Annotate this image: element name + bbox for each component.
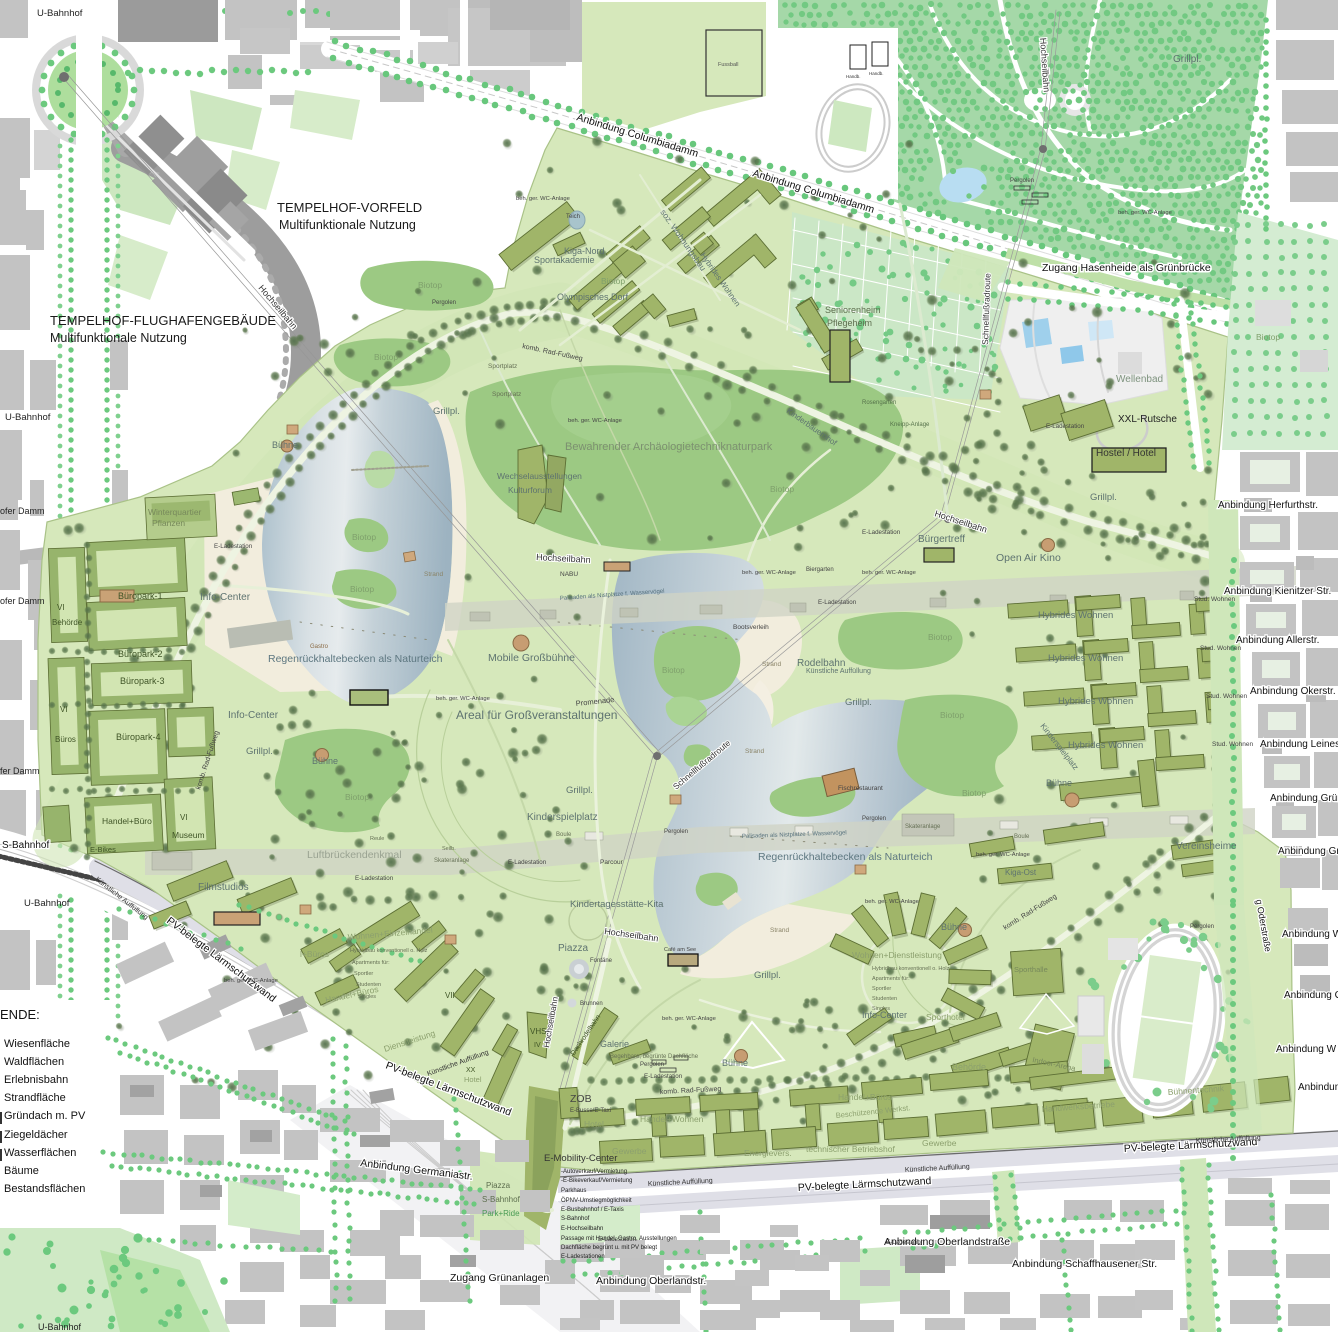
svg-text:Handel+Wohnen: Handel+Wohnen [640, 1114, 704, 1124]
svg-text:Kulturforum: Kulturforum [508, 485, 552, 495]
svg-text:Pergolen: Pergolen [1190, 924, 1214, 930]
svg-text:Biotop: Biotop [1256, 332, 1280, 342]
svg-text:Biotop: Biotop [928, 632, 952, 642]
svg-text:Anbindung Leinestr.: Anbindung Leinestr. [1260, 739, 1338, 750]
svg-text:Kneipp-Anlage: Kneipp-Anlage [890, 422, 930, 428]
svg-text:Künstliche Auffüllung: Künstliche Auffüllung [806, 668, 871, 675]
svg-text:Reule: Reule [370, 836, 384, 842]
svg-text:Sportplatz: Sportplatz [488, 363, 517, 370]
svg-text:Studenten: Studenten [356, 982, 381, 988]
svg-text:Büropark-1: Büropark-1 [118, 591, 163, 601]
svg-text:Handb.: Handb. [846, 74, 861, 79]
svg-text:Parcour: Parcour [600, 859, 624, 866]
svg-text:S-Bahnhof: S-Bahnhof [561, 1216, 590, 1222]
svg-text:E-Busbahnhof / E-Taxis: E-Busbahnhof / E-Taxis [561, 1207, 624, 1213]
svg-text:Kinderspielplatz: Kinderspielplatz [527, 812, 598, 823]
svg-text:Bürgertreff: Bürgertreff [918, 534, 965, 545]
svg-text:technischer Betriebshof: technischer Betriebshof [806, 1144, 895, 1154]
svg-text:Büropark-3: Büropark-3 [120, 676, 165, 686]
svg-text:VII: VII [445, 991, 455, 1000]
svg-text:Sportplatz: Sportplatz [492, 391, 521, 398]
svg-text:IV: IV [534, 1042, 541, 1049]
svg-text:Wellenbad: Wellenbad [1116, 374, 1163, 385]
svg-text:ofer Damm: ofer Damm [0, 506, 45, 516]
svg-text:fer Damm: fer Damm [0, 766, 40, 776]
svg-text:Hybrides Wohnen: Hybrides Wohnen [1048, 653, 1123, 664]
svg-text:E-Ladestation: E-Ladestation [862, 529, 901, 536]
svg-text:Handb.: Handb. [869, 71, 884, 76]
svg-text:Biergarten: Biergarten [806, 567, 834, 573]
svg-text:Brunnen: Brunnen [580, 1001, 603, 1007]
svg-text:Energievers.: Energievers. [744, 1148, 792, 1158]
svg-text:Multifunktionale Nutzung: Multifunktionale Nutzung [279, 218, 416, 232]
svg-text:Biotop: Biotop [418, 280, 442, 290]
svg-text:Biotop: Biotop [962, 788, 986, 798]
svg-text:Seilb.: Seilb. [442, 846, 456, 852]
svg-text:Pergolen: Pergolen [432, 300, 456, 306]
svg-text:E-Ladestation: E-Ladestation [355, 875, 394, 882]
svg-text:Biotop: Biotop [601, 276, 625, 286]
svg-text:Wasserflächen: Wasserflächen [4, 1147, 76, 1159]
svg-text:Anbindung Herfurthstr.: Anbindung Herfurthstr. [1218, 500, 1318, 511]
svg-text:-Autoverkauf/Vermietung: -Autoverkauf/Vermietung [561, 1169, 627, 1175]
svg-text:Bühne: Bühne [312, 756, 338, 766]
svg-text:Anbindung: Anbindung [1298, 1082, 1338, 1093]
svg-text:Hybridbau konventionell o. Hol: Hybridbau konventionell o. Holz [350, 948, 428, 954]
svg-text:Fontäne: Fontäne [590, 958, 613, 964]
svg-text:Grillpl.: Grillpl. [1173, 54, 1201, 65]
svg-text:Olympisches Dorf: Olympisches Dorf [557, 292, 629, 302]
svg-text:Bestandsflächen: Bestandsflächen [4, 1183, 85, 1195]
svg-text:S-Bahnhof: S-Bahnhof [482, 1195, 521, 1204]
svg-text:beh. ger. WC-Anlage: beh. ger. WC-Anlage [516, 196, 570, 202]
svg-text:Multifunktionale Nutzung: Multifunktionale Nutzung [50, 331, 187, 345]
svg-text:Strandfläche: Strandfläche [4, 1092, 66, 1104]
svg-text:Hybrides Wohnen: Hybrides Wohnen [1068, 740, 1143, 751]
svg-text:Anbindung Oberlandstr.: Anbindung Oberlandstr. [596, 1275, 706, 1287]
svg-text:Apartments für:: Apartments für: [352, 960, 390, 966]
svg-text:Biotop: Biotop [374, 352, 398, 362]
svg-text:Büros: Büros [55, 735, 76, 744]
svg-text:Wiesenfläche: Wiesenfläche [4, 1038, 70, 1050]
svg-text:Sporthotel: Sporthotel [926, 1012, 965, 1022]
svg-text:Biotop: Biotop [345, 792, 369, 802]
svg-text:Studenten: Studenten [872, 996, 897, 1002]
svg-text:Grillpl.: Grillpl. [566, 785, 593, 796]
svg-text:Areal für Großveranstaltungen: Areal für Großveranstaltungen [456, 708, 617, 722]
svg-text:Biotop: Biotop [770, 484, 794, 494]
svg-text:Erlebnisbahn: Erlebnisbahn [4, 1074, 68, 1086]
svg-text:Museum: Museum [172, 830, 205, 840]
svg-text:Wechselausstellungen: Wechselausstellungen [497, 471, 582, 481]
svg-text:Anbindung Grünanl.: Anbindung Grünanl. [1270, 793, 1338, 804]
svg-text:Café am See: Café am See [664, 947, 696, 953]
svg-text:Bühne: Bühne [1046, 778, 1072, 788]
svg-text:Bühne: Bühne [722, 1058, 748, 1068]
svg-text:beh. ger. WC-Anlage: beh. ger. WC-Anlage [862, 570, 916, 576]
svg-text:E-Ladestation: E-Ladestation [508, 859, 547, 866]
svg-text:Grillpl.: Grillpl. [433, 406, 460, 417]
svg-text:beh. ger. WC-Anlage: beh. ger. WC-Anlage [976, 852, 1030, 858]
svg-text:E-Ladestationen: E-Ladestationen [561, 1254, 605, 1260]
svg-text:ÖPNV-Umstiegmöglichkeit: ÖPNV-Umstiegmöglichkeit [561, 1197, 632, 1204]
svg-text:Galerie: Galerie [600, 1039, 629, 1049]
svg-text:Begehbare, begrünte Dachfläche: Begehbare, begrünte Dachfläche [610, 1054, 699, 1060]
svg-text:Bühne: Bühne [941, 922, 967, 932]
svg-text:Pflanzen: Pflanzen [152, 518, 185, 528]
svg-text:U-Bahnhof: U-Bahnhof [37, 8, 83, 19]
svg-text:Apartments für:: Apartments für: [872, 976, 910, 982]
svg-text:Pergolen: Pergolen [862, 816, 886, 822]
svg-text:Handel+Büro: Handel+Büro [102, 816, 152, 826]
svg-text:Anbindung Schaffhausener Str.: Anbindung Schaffhausener Str. [1012, 1258, 1157, 1270]
svg-text:Zugang Grünanlagen: Zugang Grünanlagen [450, 1272, 549, 1284]
svg-text:Bäume: Bäume [4, 1165, 39, 1177]
svg-text:Bewahrender Archäologietechnik: Bewahrender Archäologietechniknaturpark [565, 441, 773, 453]
svg-text:Hybrides Wohnen: Hybrides Wohnen [1058, 696, 1133, 707]
svg-text:Strand: Strand [770, 927, 790, 934]
svg-text:Regenrückhaltebecken als Natur: Regenrückhaltebecken als Naturteich [268, 653, 443, 665]
svg-text:Gastro: Gastro [310, 644, 329, 650]
svg-text:Grillpl.: Grillpl. [1090, 492, 1117, 503]
svg-text:Strand: Strand [745, 748, 765, 755]
svg-text:Info-Center: Info-Center [200, 592, 251, 603]
svg-text:Skateranlage: Skateranlage [434, 858, 470, 864]
svg-text:Singles: Singles [872, 1006, 890, 1012]
svg-text:Anbindung Wartb.: Anbindung Wartb. [1282, 929, 1338, 940]
svg-text:Anbindung Okerstr.: Anbindung Okerstr. [1250, 686, 1336, 697]
svg-text:Kiga-Nord: Kiga-Nord [564, 246, 605, 256]
svg-text:beh. ger. WC-Anlage: beh. ger. WC-Anlage [224, 978, 278, 984]
svg-text:Behörde: Behörde [52, 618, 83, 627]
svg-text:Grillpl.: Grillpl. [246, 746, 273, 757]
svg-text:Stud. Wohnen: Stud. Wohnen [1200, 645, 1241, 652]
svg-text:E-Ladestation: E-Ladestation [644, 1073, 683, 1080]
svg-text:Kiga-Ost: Kiga-Ost [1005, 868, 1037, 877]
svg-text:Sportler: Sportler [354, 971, 373, 977]
svg-text:E-Ladestation: E-Ladestation [598, 1236, 637, 1243]
svg-text:Stud. Wohnen: Stud. Wohnen [1194, 596, 1235, 603]
svg-text:Büropark-4: Büropark-4 [116, 732, 161, 742]
svg-text:Biotop: Biotop [662, 666, 685, 675]
svg-text:Strand: Strand [762, 661, 782, 668]
svg-text:Luftbrückendenkmal: Luftbrückendenkmal [307, 849, 402, 861]
svg-text:NABU: NABU [560, 571, 578, 578]
svg-text:E-Busse/E-Taxi: E-Busse/E-Taxi [570, 1108, 611, 1114]
svg-text:Wohnen+Dienstleistung: Wohnen+Dienstleistung [852, 950, 942, 960]
svg-text:Winterquartier: Winterquartier [148, 507, 202, 517]
svg-text:Grillpl.: Grillpl. [754, 970, 781, 981]
svg-text:Strand: Strand [424, 571, 444, 578]
svg-text:Sporthalle: Sporthalle [1014, 965, 1048, 974]
svg-text:-E-Bikeverkauf/Vermietung: -E-Bikeverkauf/Vermietung [561, 1178, 632, 1184]
svg-text:Stud. Wohnen: Stud. Wohnen [1206, 693, 1247, 700]
svg-text:VI: VI [60, 705, 68, 714]
svg-text:Seniorenheim: Seniorenheim [825, 305, 881, 315]
svg-text:U-Bahnhof: U-Bahnhof [38, 1322, 82, 1332]
svg-text:Boule: Boule [556, 832, 572, 838]
svg-text:LEGENDE:: LEGENDE: [0, 1007, 40, 1022]
svg-text:Waldflächen: Waldflächen [4, 1056, 64, 1068]
svg-text:E-Mobility-Center: E-Mobility-Center [544, 1153, 617, 1164]
svg-text:Hostel / Hotel: Hostel / Hotel [1096, 448, 1156, 459]
svg-text:beh. ger. WC-Anlage: beh. ger. WC-Anlage [865, 899, 919, 905]
svg-text:Singles: Singles [358, 994, 376, 1000]
svg-text:Zugang Hasenheide als Grünbrü: Zugang Hasenheide als Grünbrücke [1042, 262, 1211, 274]
svg-text:Vereinsheime: Vereinsheime [1176, 841, 1237, 852]
svg-text:TEMPELHOF-VORFELD: TEMPELHOF-VORFELD [277, 200, 422, 215]
svg-text:beh. ger. WC-Anlage: beh. ger. WC-Anlage [436, 696, 490, 702]
svg-text:Hybrides Wohnen: Hybrides Wohnen [1038, 610, 1113, 621]
svg-text:Kindertagesstätte-Kita: Kindertagesstätte-Kita [570, 899, 664, 910]
svg-text:Anbindung Allerstr.: Anbindung Allerstr. [1236, 635, 1319, 646]
svg-text:beh. ger. WC-Anlage: beh. ger. WC-Anlage [742, 570, 796, 576]
svg-text:VI: VI [180, 813, 188, 822]
svg-text:Biotop: Biotop [940, 710, 964, 720]
svg-text:Fussball: Fussball [718, 62, 738, 68]
svg-text:Regenrückhaltebecken als Natur: Regenrückhaltebecken als Naturteich [758, 851, 933, 863]
svg-text:U-Bahnhof: U-Bahnhof [5, 412, 51, 423]
svg-text:TEMPELHOF-FLUGHAFENGEBÄUDE: TEMPELHOF-FLUGHAFENGEBÄUDE [50, 313, 276, 328]
svg-text:U-Bahnhof: U-Bahnhof [24, 898, 70, 909]
svg-text:XXL-Rutsche: XXL-Rutsche [1118, 414, 1177, 425]
svg-text:Piazza: Piazza [486, 1181, 511, 1190]
svg-text:Anbindung W: Anbindung W [1276, 1044, 1337, 1055]
svg-text:Parkhaus: Parkhaus [561, 1188, 586, 1194]
svg-text:Hotel: Hotel [464, 1075, 482, 1084]
svg-text:Gewerbe: Gewerbe [922, 1138, 957, 1148]
svg-text:Piazza: Piazza [558, 943, 588, 954]
svg-text:Dachfläche begrünt u. mit PV b: Dachfläche begrünt u. mit PV belegt [561, 1245, 657, 1251]
svg-text:Hotel: Hotel [584, 1119, 604, 1129]
svg-text:Bühne: Bühne [272, 440, 298, 450]
svg-text:Pflegeheim: Pflegeheim [827, 318, 872, 328]
svg-text:Ziegeldächer: Ziegeldächer [4, 1129, 68, 1141]
svg-text:Pergolen: Pergolen [664, 829, 688, 835]
svg-text:E-Ladestation: E-Ladestation [818, 599, 857, 606]
svg-text:Boule: Boule [1014, 834, 1030, 840]
svg-text:Bootsverleih: Bootsverleih [733, 624, 769, 631]
svg-text:Handel+Büros: Handel+Büros [838, 1092, 892, 1102]
svg-text:XX: XX [466, 1067, 476, 1074]
svg-text:Anbindung Grün: Anbindung Grün [1284, 990, 1338, 1001]
svg-text:E-Ladestation: E-Ladestation [1046, 423, 1085, 430]
svg-text:Filmstudios: Filmstudios [198, 882, 249, 893]
svg-text:Biotop: Biotop [352, 532, 376, 542]
svg-text:Anbindung Kienitzer Str.: Anbindung Kienitzer Str. [1224, 586, 1331, 597]
svg-text:Biotop: Biotop [350, 584, 374, 594]
svg-text:Info-Center: Info-Center [228, 710, 279, 721]
svg-text:Fischrestaurant: Fischrestaurant [838, 785, 883, 792]
svg-text:Rosengarten: Rosengarten [862, 400, 896, 406]
svg-text:VI: VI [57, 603, 65, 612]
svg-text:Grillpl.: Grillpl. [845, 697, 872, 708]
svg-text:Teich: Teich [566, 214, 580, 220]
svg-text:Mobile Großbühne: Mobile Großbühne [488, 652, 575, 664]
svg-text:Sportakademie: Sportakademie [534, 255, 595, 265]
svg-text:E-Ladestation: E-Ladestation [214, 543, 253, 550]
svg-text:VHS: VHS [530, 1027, 546, 1036]
svg-text:Büropark-2: Büropark-2 [118, 649, 163, 659]
svg-text:Anbindung Grü: Anbindung Grü [1278, 846, 1338, 857]
svg-text:Pergolen: Pergolen [1010, 178, 1034, 184]
svg-text:E-Ladestation: E-Ladestation [886, 1239, 925, 1246]
svg-text:Park+Ride: Park+Ride [482, 1209, 520, 1218]
svg-text:Skateranlage: Skateranlage [905, 824, 941, 830]
svg-text:Behörde: Behörde [952, 1062, 986, 1072]
svg-text:E-Bikes: E-Bikes [90, 845, 116, 854]
svg-text:Open Air Kino: Open Air Kino [996, 552, 1061, 564]
svg-text:Gründach m. PV: Gründach m. PV [4, 1110, 86, 1122]
svg-text:beh. ger. WC-Anlage: beh. ger. WC-Anlage [568, 418, 622, 424]
svg-text:Hybridbau konventionell o. Hol: Hybridbau konventionell o. Holz [872, 966, 950, 972]
svg-text:E-Hochseilbahn: E-Hochseilbahn [561, 1226, 603, 1232]
svg-text:ofer Damm: ofer Damm [0, 596, 45, 606]
svg-text:beh. ger. WC-Anlage: beh. ger. WC-Anlage [662, 1016, 716, 1022]
svg-text:beh. ger. WC-Anlage: beh. ger. WC-Anlage [1118, 210, 1172, 216]
svg-text:Stud. Wohnen: Stud. Wohnen [1212, 741, 1253, 748]
svg-text:S-Bahnhof: S-Bahnhof [2, 840, 49, 851]
svg-text:l+Büros: l+Büros [300, 949, 329, 959]
svg-text:ZOB: ZOB [570, 1093, 592, 1105]
svg-text:Sportler: Sportler [872, 986, 891, 992]
